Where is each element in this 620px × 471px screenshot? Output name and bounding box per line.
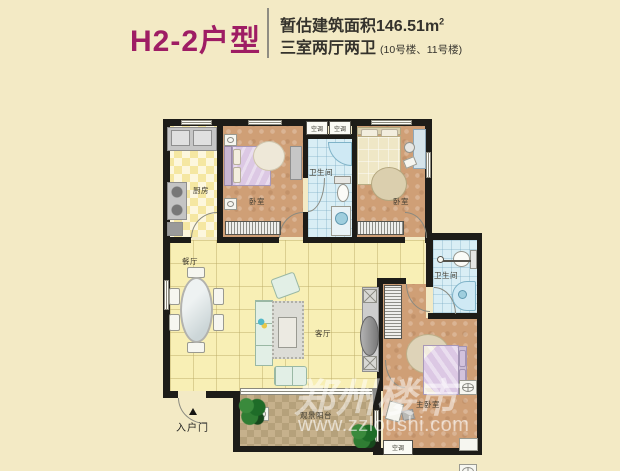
pillow-icon (233, 149, 241, 165)
toilet-icon (470, 250, 477, 269)
ac-pad-3: 空调 (383, 440, 413, 455)
kitchen-sink-1 (171, 130, 190, 146)
bedroom-right-label: 卧室 (393, 196, 409, 207)
dining-label: 餐厅 (182, 256, 198, 267)
bedroom-left-rug (253, 141, 285, 171)
sink-icon (335, 212, 348, 225)
pillow-icon (459, 350, 466, 367)
kitchen-stove (167, 182, 187, 220)
dining-chair (213, 288, 224, 305)
wall-band-2 (217, 237, 279, 243)
nightstand-icon (224, 134, 237, 146)
cabinet-deco (363, 289, 377, 303)
ac-pad-1: 空调 (306, 121, 328, 135)
wall-bath2-left (426, 240, 433, 287)
wall-right-upper (425, 119, 432, 238)
entrance-arrow-icon (189, 408, 197, 415)
chair-icon (404, 142, 415, 153)
bathroom-top-label: 卫生间 (309, 167, 333, 178)
balcony-label: 观景阳台 (300, 410, 332, 421)
dining-chair (169, 288, 180, 305)
bedroom-left-window (248, 120, 282, 125)
dining-chair (213, 314, 224, 331)
corner-ledge (459, 438, 478, 451)
hook-icon (437, 256, 444, 263)
building-note: (10号楼、11号楼) (380, 44, 462, 56)
wall-left (163, 119, 170, 398)
wall-bottom-left (163, 391, 178, 398)
master-wardrobe (384, 285, 402, 339)
wall-bath2-top (428, 233, 482, 240)
entrance-label: 入户门 (176, 419, 209, 434)
bedroom-left-cabinet (290, 146, 302, 180)
dining-chair (169, 314, 180, 331)
coffee-table (278, 317, 297, 348)
drain-icon (458, 290, 467, 299)
wall-bottom-mid (206, 391, 234, 398)
plant-icon (238, 396, 266, 426)
wall-band-3 (303, 237, 405, 243)
kitchen-window (181, 120, 212, 125)
floorplan-page: H2-2户型 暂估建筑面积146.51m2 三室两厅两卫(10号楼、11号楼) … (0, 0, 620, 471)
wall-kitchen-bedroom (217, 126, 223, 237)
kitchen-cabinet (167, 222, 183, 236)
header-divider (267, 8, 269, 58)
kitchen-label: 厨房 (193, 185, 209, 196)
nightstand-icon (224, 198, 237, 210)
nightstand-icon (459, 464, 477, 471)
plan-title: H2-2户型 (130, 16, 261, 60)
bedroom-right-window (371, 120, 412, 125)
bedroom-left-wardrobe (225, 221, 281, 235)
toilet-bowl-icon (337, 184, 349, 202)
area-text: 暂估建筑面积146.51m2 (280, 12, 444, 36)
wall-band-1 (163, 237, 191, 243)
toilet-icon (334, 176, 351, 184)
toilet-bowl-icon (453, 251, 470, 267)
bedroom-right-wardrobe (357, 221, 404, 235)
sofa-main (255, 300, 273, 366)
towel-bar (443, 260, 471, 262)
wall-right-main (477, 233, 482, 455)
nightstand-icon (459, 380, 477, 395)
kitchen-sink-2 (193, 130, 212, 146)
spec-text: 三室两厅两卫(10号楼、11号楼) (280, 34, 462, 58)
bedroom-left-label: 卧室 (249, 196, 265, 207)
bed-headboard (224, 146, 232, 186)
tv-icon (360, 316, 379, 356)
bedroom-right-side-window (426, 152, 431, 178)
vase-icon (258, 318, 267, 329)
bathroom-right-label: 卫生间 (434, 270, 458, 281)
living-label: 客厅 (315, 328, 331, 339)
master-bedroom-label: 主卧室 (416, 399, 440, 410)
dining-chair (187, 342, 205, 353)
pillow-icon (233, 167, 241, 183)
ac-pad-2: 空调 (329, 121, 351, 135)
dining-table (180, 277, 213, 343)
